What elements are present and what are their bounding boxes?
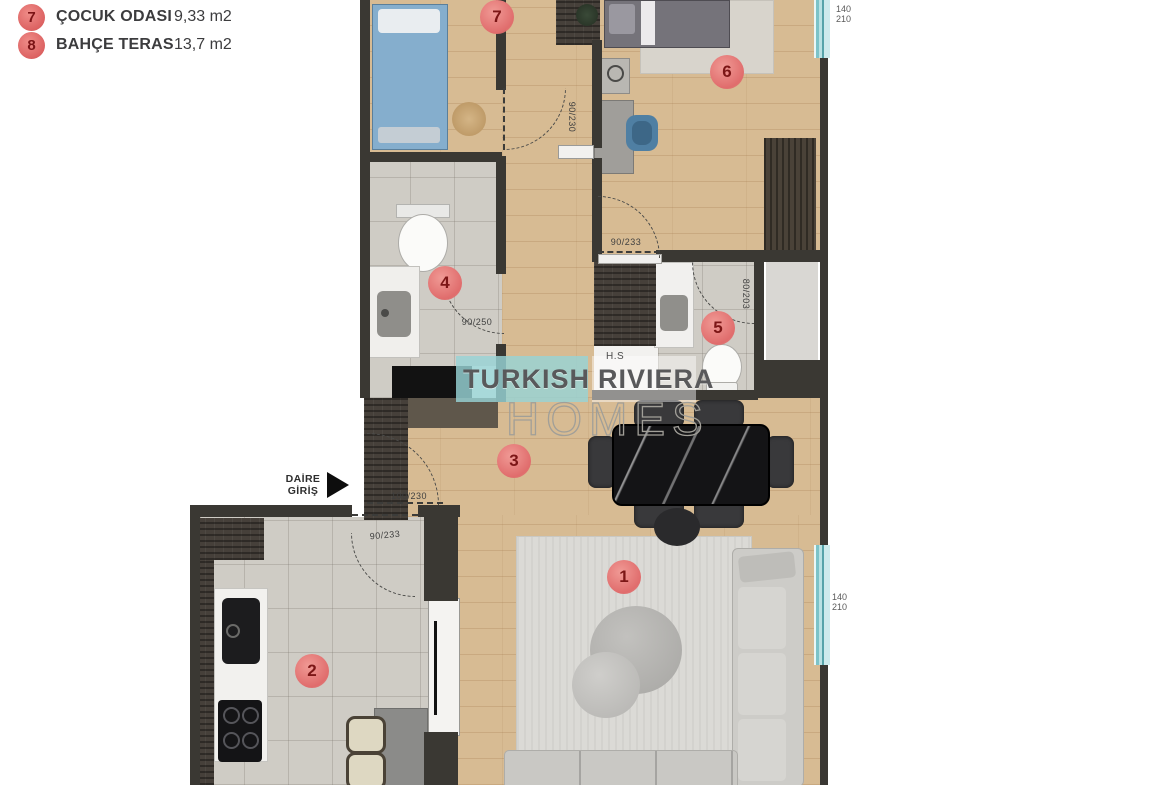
child-rug	[452, 102, 486, 136]
legend-label-8: BAHÇE TERAS	[56, 36, 174, 54]
desk-chair	[626, 115, 658, 151]
watermark-word-riviera: RIVIERA	[598, 364, 715, 395]
bedroom-wardrobe	[764, 138, 816, 258]
legend-area-7: 9,33 m2	[174, 8, 232, 26]
window-dimension-label: 140210	[836, 4, 851, 24]
plant	[576, 4, 598, 26]
child-bed	[372, 4, 448, 150]
sofa-right	[732, 548, 804, 785]
room-marker-7: 7	[480, 0, 514, 34]
dining-chair	[766, 436, 794, 488]
burner	[223, 707, 240, 724]
sofa-cushion	[738, 587, 786, 649]
dimension-label: 90/233	[600, 237, 652, 247]
desk-chair-seat	[632, 121, 652, 145]
room-marker-1: 1	[607, 560, 641, 594]
sofa-cushion	[738, 653, 786, 715]
door-arc-hall	[504, 88, 566, 150]
window-top-right	[814, 0, 830, 58]
wc-counter	[654, 262, 694, 348]
door-chord-bedroom	[598, 251, 660, 253]
wall-kitchen-top-right	[418, 505, 460, 517]
burner	[223, 732, 240, 749]
pouf-small	[572, 652, 640, 718]
entrance-arrow-icon	[327, 472, 349, 498]
kitchen-sink	[222, 598, 260, 664]
watermark-word-turkish: TURKISH	[463, 364, 590, 395]
entry-mat	[408, 398, 498, 428]
cooktop	[218, 700, 262, 762]
wall-left-upper	[360, 0, 370, 398]
sofa-cushion	[738, 719, 786, 781]
child-bed-foot	[378, 127, 440, 143]
wall-right-main	[820, 58, 828, 545]
door-arc-bedroom	[598, 196, 660, 258]
bed-sheet	[641, 1, 655, 45]
kitchen-corner-cabinet	[196, 518, 264, 560]
fridge-handle	[434, 621, 437, 715]
wall-bath-right-upper	[496, 156, 506, 274]
wall-right-lower	[820, 665, 828, 785]
bath-faucet	[381, 309, 389, 317]
stool	[346, 716, 386, 754]
wc-sink	[660, 295, 688, 331]
wall-bedroom-left-upper	[592, 40, 602, 148]
door-chord-hall	[503, 88, 505, 150]
door-chord-kitchen	[352, 514, 418, 516]
door-chord-entry	[367, 502, 443, 504]
wc-wardrobe	[594, 258, 656, 346]
dimension-label: 100/230	[380, 491, 438, 501]
toilet	[398, 214, 448, 272]
room-marker-3: 3	[497, 444, 531, 478]
wall-kitchen-left	[190, 517, 200, 785]
room-marker-5: 5	[701, 311, 735, 345]
bed-pillow	[609, 4, 635, 34]
side-table-round	[654, 508, 700, 546]
wall-shaft-bottom	[756, 360, 822, 398]
room-marker-4: 4	[428, 266, 462, 300]
kitchen-faucet	[226, 624, 240, 638]
nightstand	[600, 58, 630, 94]
burner	[242, 732, 259, 749]
wall-kitchen-living-divider-lower	[424, 732, 458, 785]
lamp	[607, 65, 624, 82]
dimension-label: 90/230	[567, 93, 577, 141]
bath-counter	[368, 266, 420, 358]
window-dimension-label: 140210	[832, 592, 847, 612]
tall-unit-fridge	[428, 598, 460, 736]
entrance-label: DAİREGİRİŞ	[280, 473, 326, 497]
burner	[242, 707, 259, 724]
child-bed-pillow	[378, 9, 440, 33]
legend-badge-8: 8	[18, 32, 45, 59]
legend-label-7: ÇOCUK ODASI	[56, 8, 172, 26]
wall-child-bath-divider	[360, 152, 502, 162]
wall-kitchen-living-divider	[424, 517, 458, 601]
stool	[346, 752, 386, 785]
sofa-bottom	[504, 750, 738, 785]
shaft-floor	[766, 258, 818, 362]
floor-plan: 90/230 90/233 90/250 80/203 100/230 90/2…	[0, 0, 1170, 785]
door-arc-kitchen	[351, 533, 415, 597]
window-living	[814, 545, 830, 665]
dimension-label: 80/203	[741, 270, 751, 318]
main-bed	[604, 0, 730, 48]
dimension-label: 90/250	[452, 317, 502, 327]
room-label-hs: H.S	[606, 351, 624, 362]
room-marker-2: 2	[295, 654, 329, 688]
legend-area-8: 13,7 m2	[174, 36, 232, 54]
wall-bedroom-bottom	[656, 250, 822, 262]
wall-kitchen-top-left	[190, 505, 352, 517]
room-marker-6: 6	[710, 55, 744, 89]
legend-badge-7: 7	[18, 4, 45, 31]
sofa-pillow	[738, 551, 796, 583]
upper-hall-floor	[502, 0, 598, 398]
watermark-word-homes: HOMES	[506, 392, 710, 446]
